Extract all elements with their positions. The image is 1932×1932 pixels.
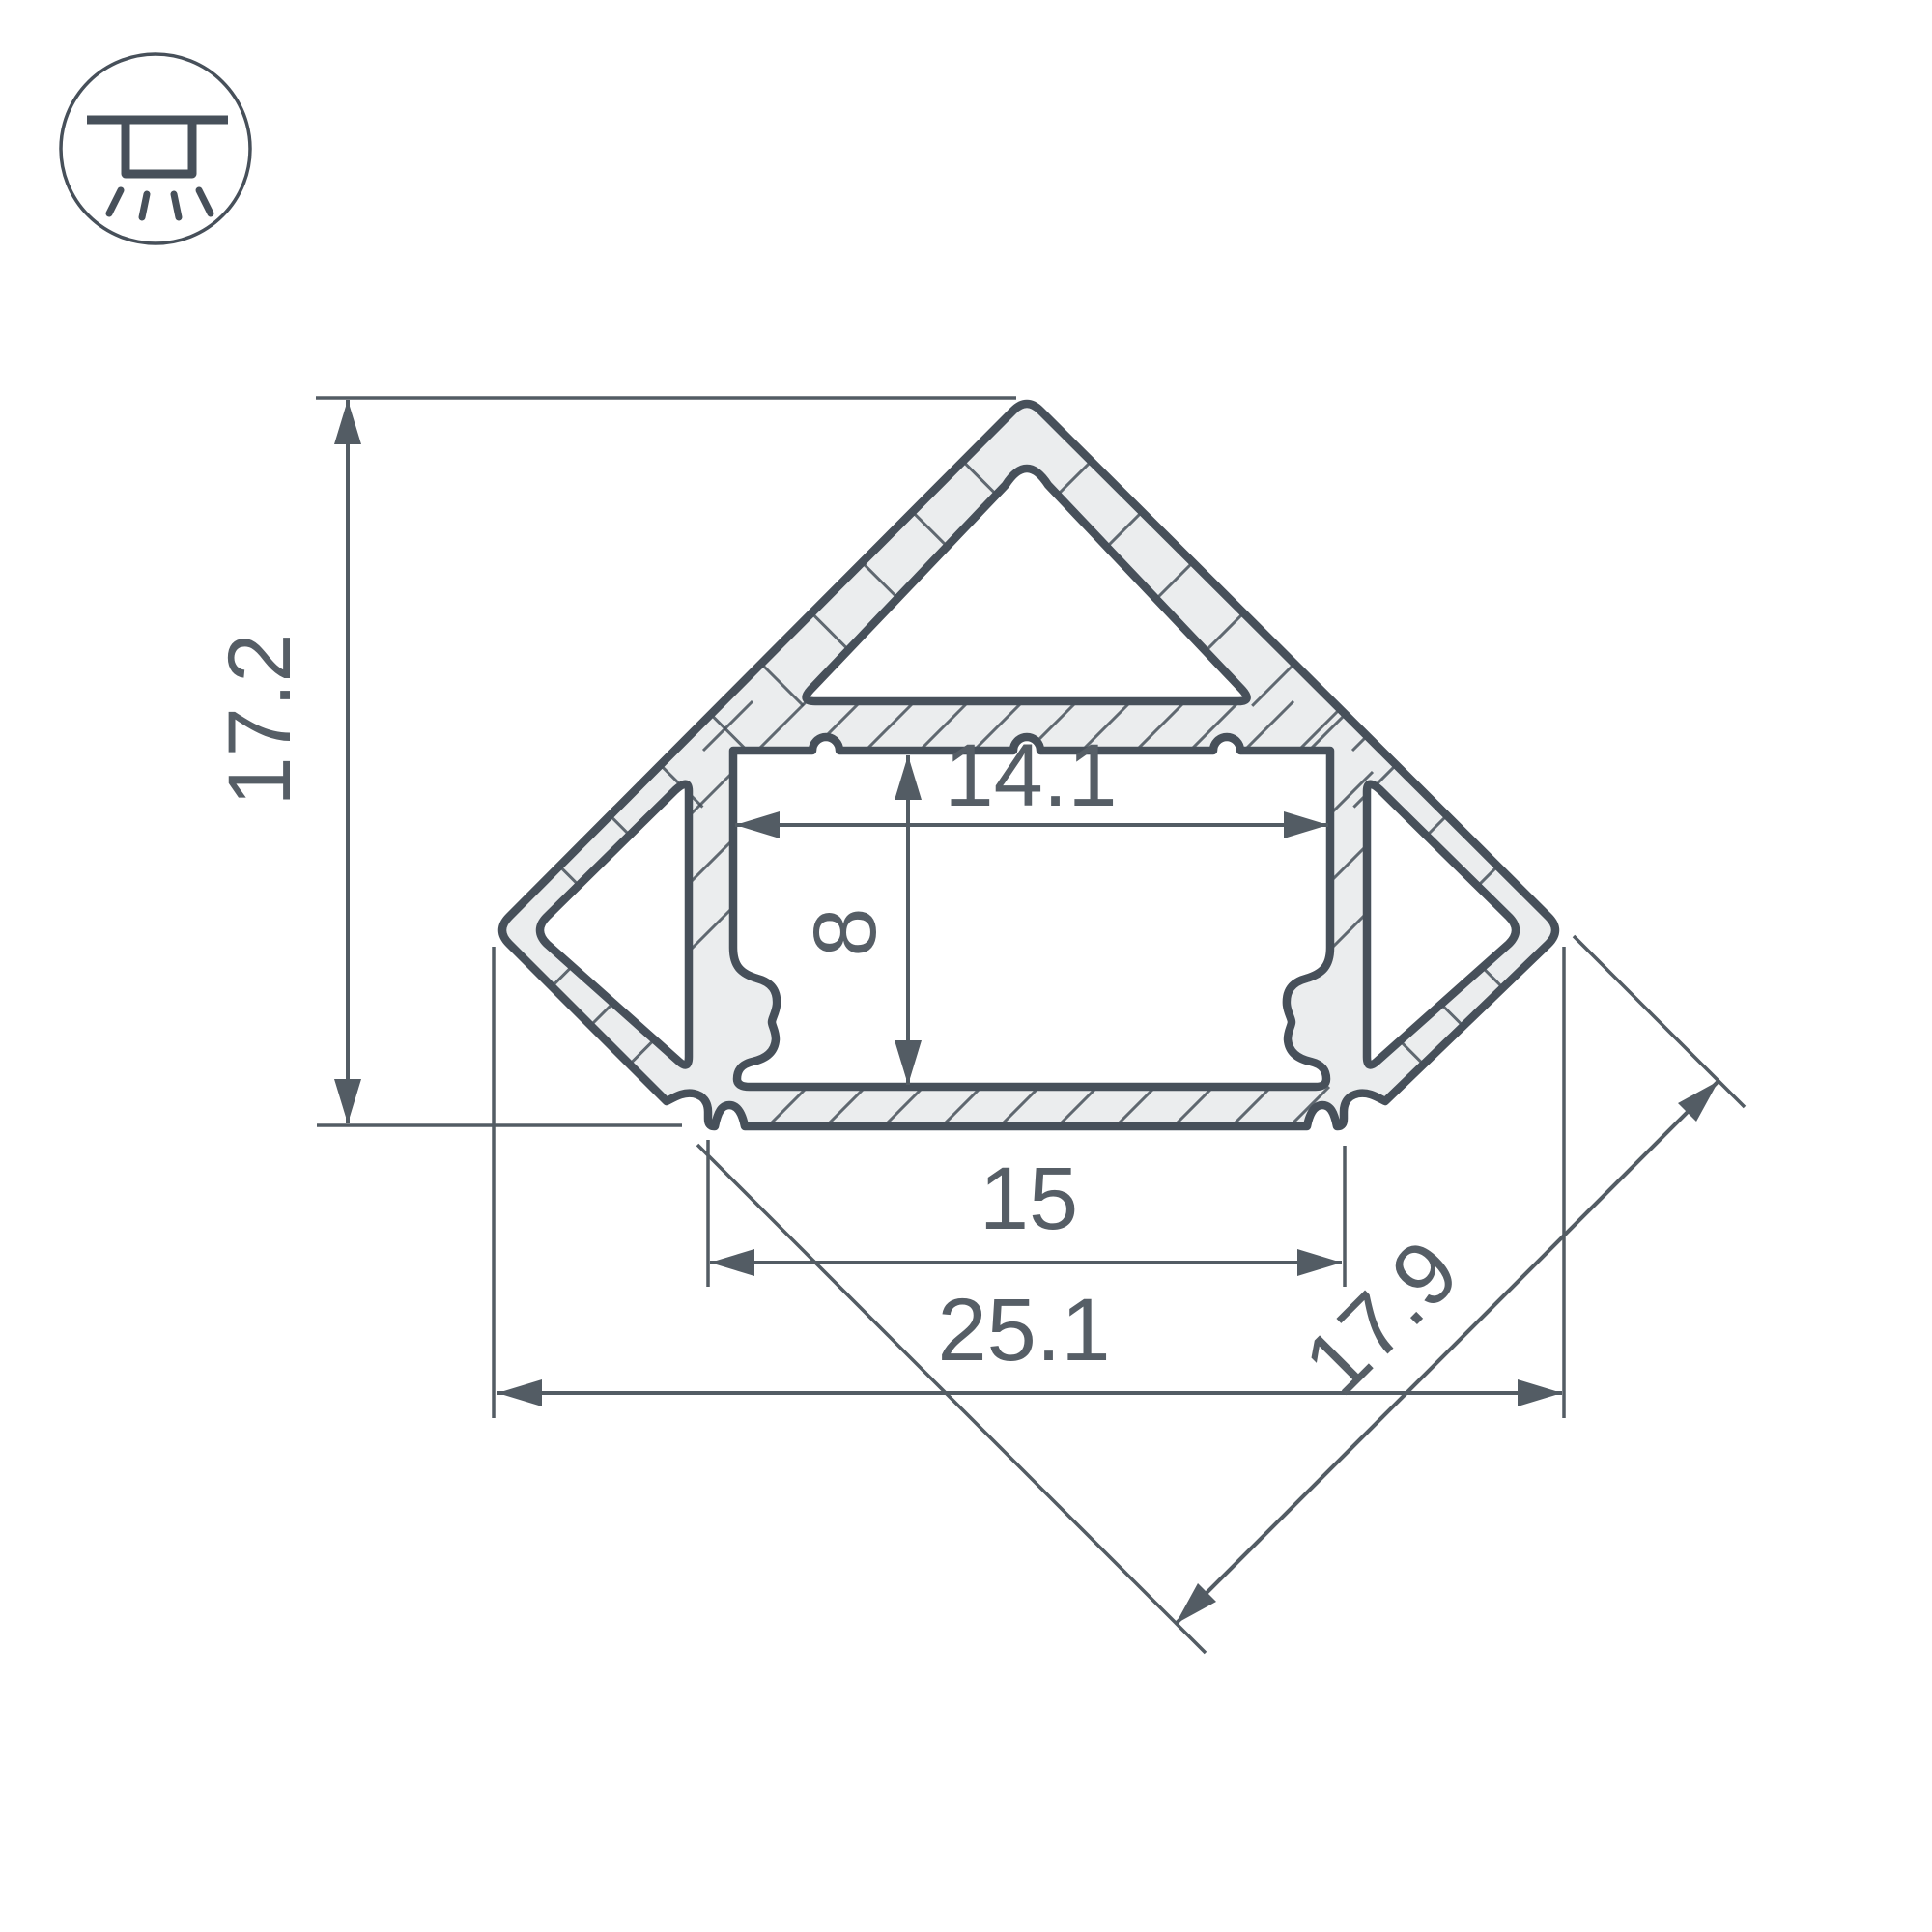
dimension-inner-depth: 8: [796, 755, 922, 1085]
arrow-right-icon: [1284, 811, 1328, 838]
dim-label-overall-width: 25.1: [937, 1281, 1110, 1379]
dim-label-base-width: 15: [980, 1150, 1078, 1248]
arrow-down-icon: [334, 1079, 361, 1123]
dim-label-inner-depth: 8: [796, 907, 895, 956]
icon-circle: [61, 54, 250, 243]
arrow-right-icon: [1518, 1379, 1562, 1406]
dimension-base-width: 15: [708, 1140, 1345, 1287]
arrow-right-icon: [1297, 1249, 1342, 1276]
drawing-canvas: 17.2 14.1 8 15 25.1: [0, 0, 1932, 1932]
dim-label-overall-height: 17.2: [211, 633, 309, 806]
dimensions: 17.2 14.1 8 15 25.1: [211, 398, 1745, 1653]
dimension-face-width: 17.9: [697, 936, 1745, 1653]
arrow-left-icon: [710, 1249, 754, 1276]
arrow-left-icon: [497, 1379, 542, 1406]
arrow-up-icon: [895, 755, 922, 800]
mount-type-icon: [61, 54, 250, 243]
profile-technical-drawing: 17.2 14.1 8 15 25.1: [0, 0, 1932, 1932]
dim-label-inner-width: 14.1: [944, 726, 1117, 825]
arrow-down-icon: [895, 1040, 922, 1085]
arrow-up-icon: [334, 400, 361, 444]
recessed-ceiling-light-icon: [87, 120, 228, 217]
dim-label-face-width: 17.9: [1286, 1222, 1478, 1414]
arrow-left-icon: [735, 811, 780, 838]
